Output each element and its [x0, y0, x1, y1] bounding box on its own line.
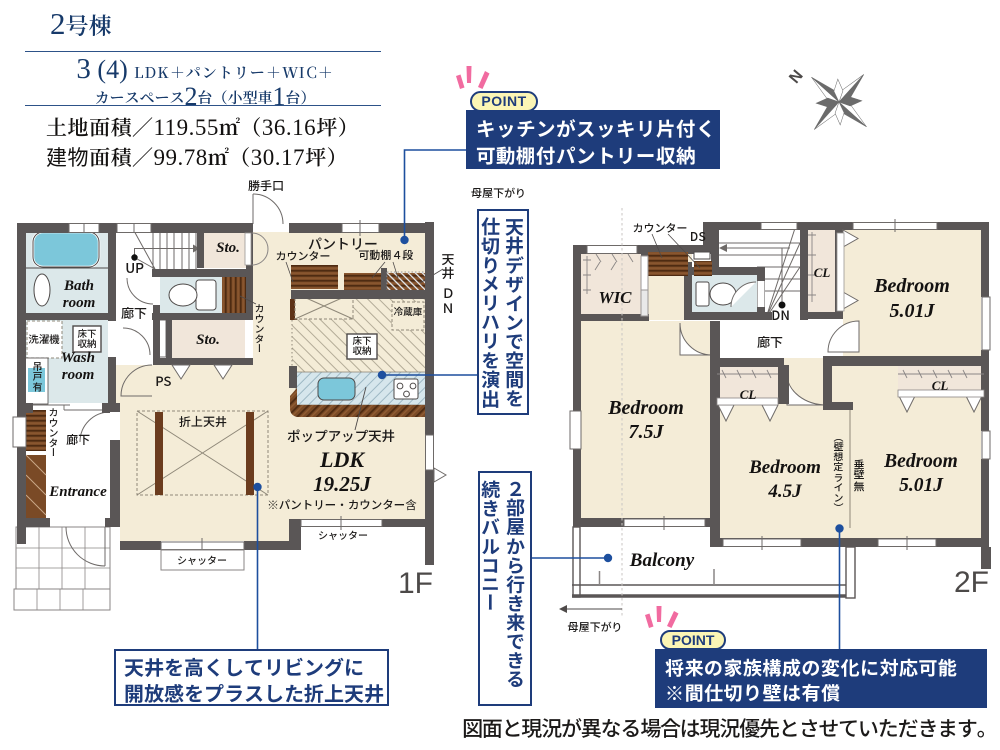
svg-text:4.5J: 4.5J — [767, 481, 802, 502]
svg-text:N: N — [786, 67, 806, 87]
svg-text:収納: 収納 — [352, 343, 372, 357]
svg-text:Bedroom: Bedroom — [748, 457, 821, 478]
svg-text:カウンター: カウンター — [276, 248, 331, 264]
svg-text:廊下: 廊下 — [757, 332, 783, 351]
svg-text:5.01J: 5.01J — [890, 300, 936, 322]
svg-text:Sto.: Sto. — [196, 332, 220, 348]
svg-text:19.25J: 19.25J — [313, 472, 372, 496]
svg-text:CL: CL — [814, 265, 831, 280]
svg-text:Bedroom: Bedroom — [883, 451, 958, 472]
svg-text:洗濯機: 洗濯機 — [28, 332, 60, 347]
svg-text:シャッター: シャッター — [318, 527, 368, 542]
svg-text:WIC: WIC — [598, 288, 632, 307]
svg-text:DS: DS — [690, 228, 706, 245]
svg-text:Balcony: Balcony — [629, 550, 695, 571]
svg-text:収納: 収納 — [77, 336, 97, 350]
svg-text:Sto.: Sto. — [216, 240, 240, 256]
svg-text:UP: UP — [125, 257, 144, 277]
svg-text:PS: PS — [155, 371, 171, 390]
svg-text:room: room — [62, 367, 95, 383]
svg-text:CL: CL — [932, 378, 949, 393]
svg-text:Ｎ: Ｎ — [441, 298, 454, 317]
svg-text:2F: 2F — [954, 566, 989, 599]
svg-text:1F: 1F — [398, 567, 433, 600]
svg-text:Bedroom: Bedroom — [873, 275, 950, 297]
svg-text:母屋下がり: 母屋下がり — [471, 185, 526, 201]
svg-text:折上天井: 折上天井 — [179, 413, 227, 430]
svg-text:井: 井 — [441, 263, 454, 282]
svg-text:冷蔵庫: 冷蔵庫 — [394, 304, 423, 318]
svg-text:廊下: 廊下 — [121, 303, 147, 322]
svg-text:7.5J: 7.5J — [629, 421, 665, 443]
svg-text:ポップアップ天井: ポップアップ天井 — [287, 425, 395, 445]
svg-text:LDK: LDK — [319, 447, 365, 472]
svg-text:勝手口: 勝手口 — [248, 177, 284, 194]
svg-text:※パントリー・カウンター含: ※パントリー・カウンター含 — [267, 497, 417, 513]
svg-text:シャッター: シャッター — [177, 552, 227, 567]
svg-text:DN: DN — [771, 305, 790, 324]
svg-text:可動棚４段: 可動棚４段 — [359, 247, 414, 263]
svg-text:CL: CL — [740, 387, 757, 402]
svg-text:Wash: Wash — [61, 350, 95, 366]
svg-text:room: room — [63, 295, 96, 311]
svg-text:Bath: Bath — [63, 278, 94, 294]
svg-text:母屋下がり: 母屋下がり — [568, 619, 623, 635]
svg-text:Entrance: Entrance — [48, 484, 107, 500]
svg-text:5.01J: 5.01J — [899, 475, 944, 496]
svg-text:廊下: 廊下 — [66, 431, 90, 448]
svg-text:Bedroom: Bedroom — [607, 397, 684, 419]
svg-text:カウンター: カウンター — [633, 220, 688, 236]
